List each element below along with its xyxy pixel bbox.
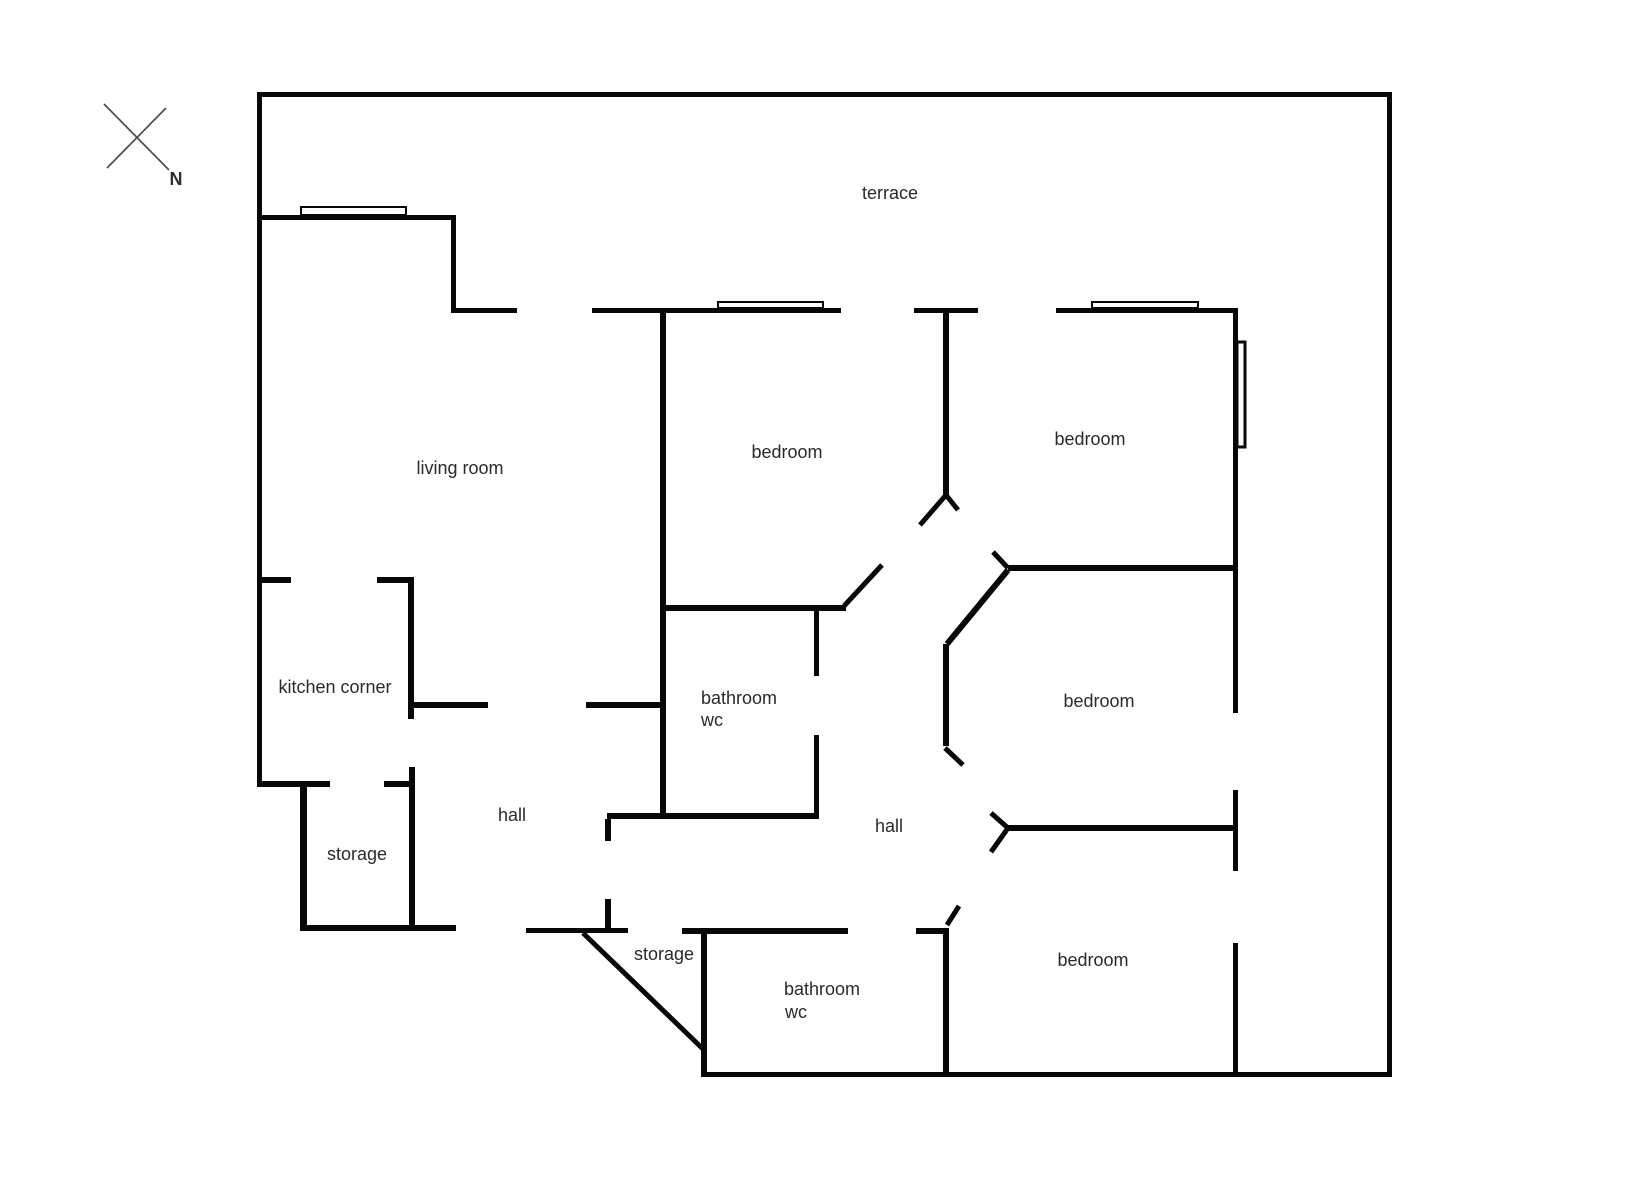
svg-text:kitchen corner: kitchen corner <box>278 677 391 697</box>
svg-text:wc: wc <box>700 710 723 730</box>
svg-text:wc: wc <box>784 1002 807 1022</box>
svg-text:bedroom: bedroom <box>1054 429 1125 449</box>
svg-text:bedroom: bedroom <box>1063 691 1134 711</box>
svg-text:storage: storage <box>327 844 387 864</box>
svg-text:bathroom: bathroom <box>784 979 860 999</box>
svg-text:bedroom: bedroom <box>751 442 822 462</box>
svg-text:bedroom: bedroom <box>1057 950 1128 970</box>
svg-text:storage: storage <box>634 944 694 964</box>
svg-text:terrace: terrace <box>862 183 918 203</box>
svg-text:living room: living room <box>416 458 503 478</box>
svg-text:N: N <box>170 169 183 189</box>
svg-text:hall: hall <box>875 816 903 836</box>
svg-text:bathroom: bathroom <box>701 688 777 708</box>
svg-text:hall: hall <box>498 805 526 825</box>
